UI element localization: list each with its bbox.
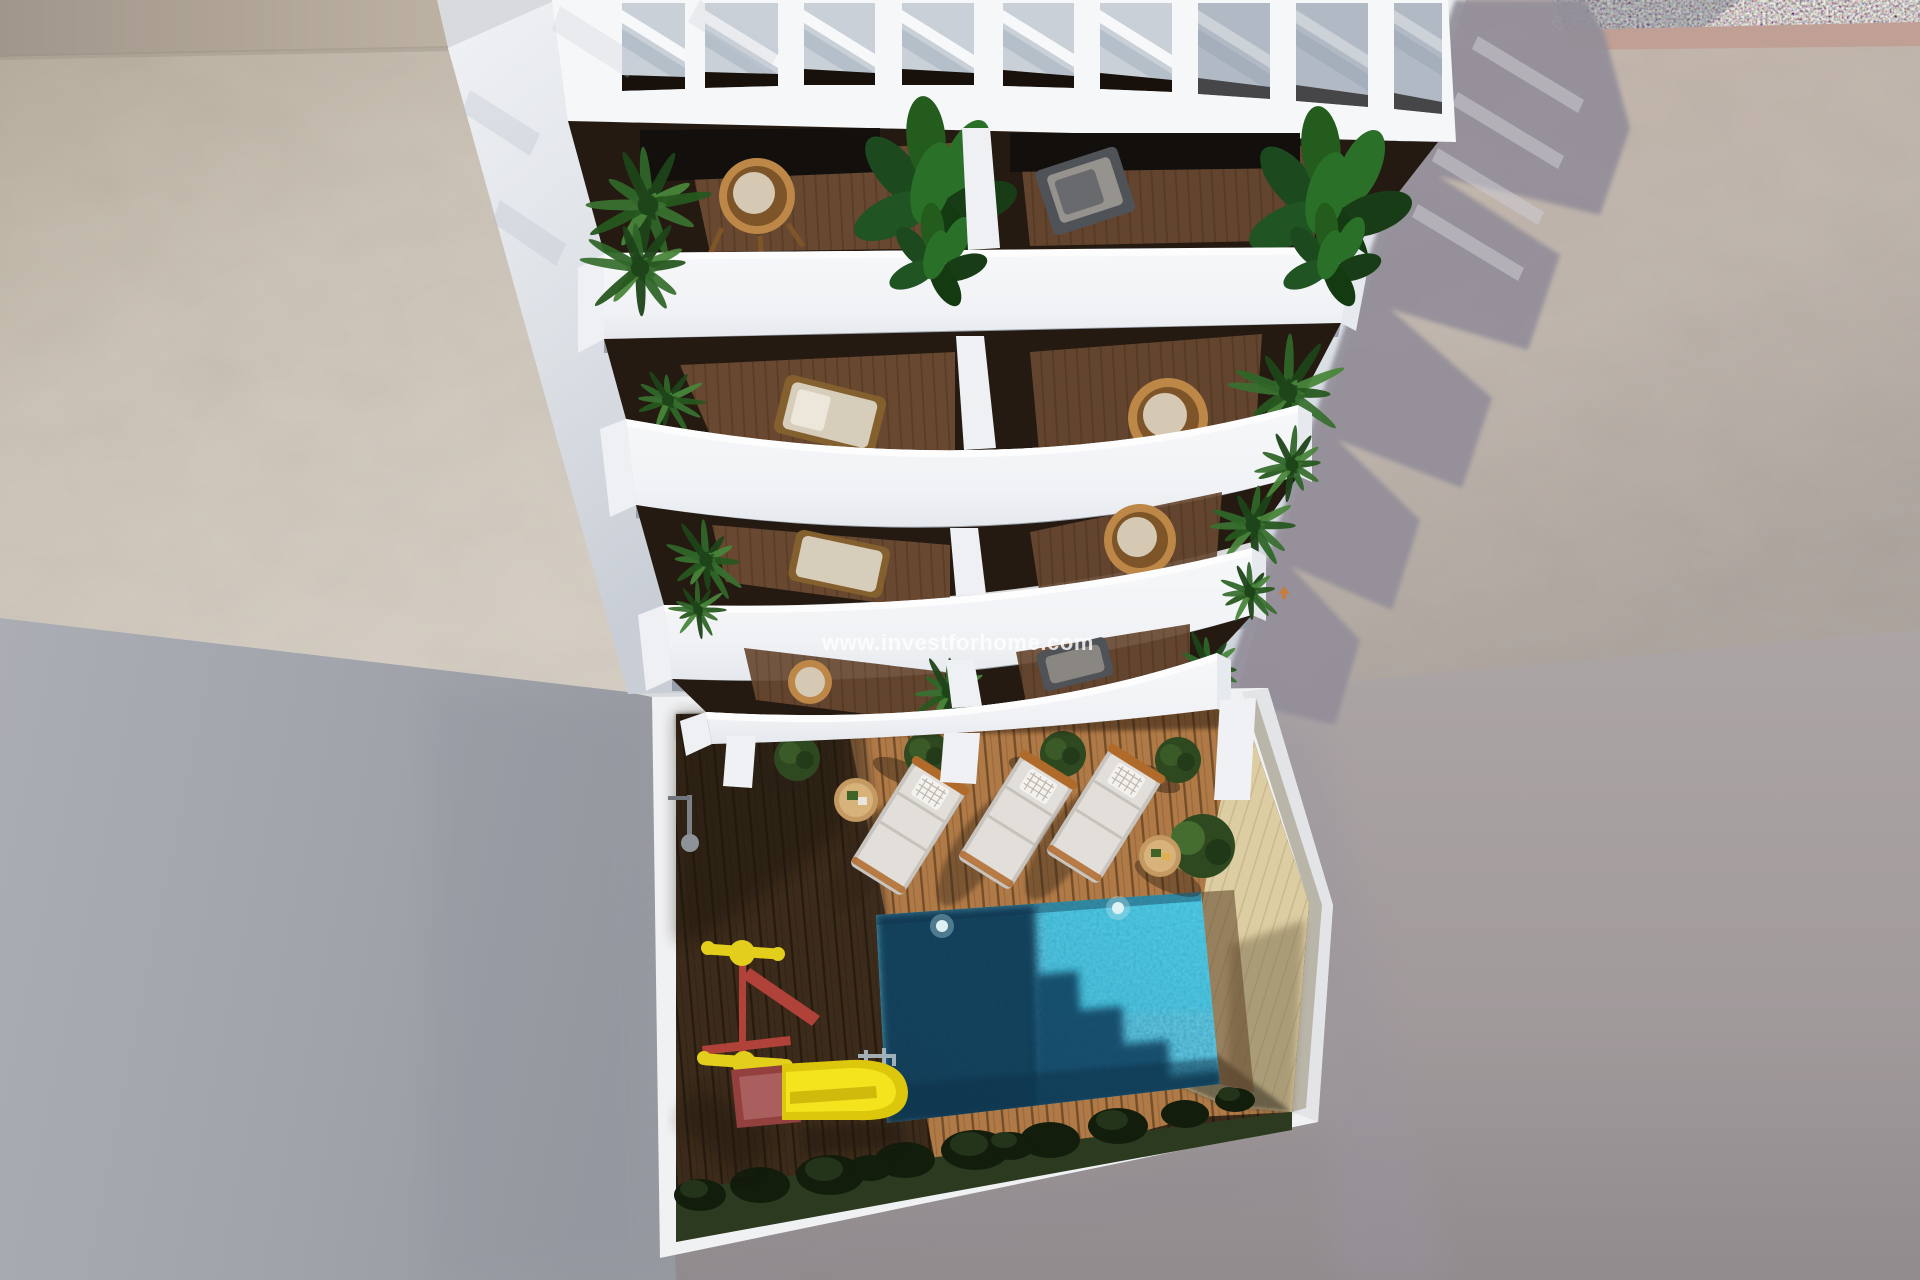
svg-text:www.investforhome.com: www.investforhome.com xyxy=(821,630,1094,655)
